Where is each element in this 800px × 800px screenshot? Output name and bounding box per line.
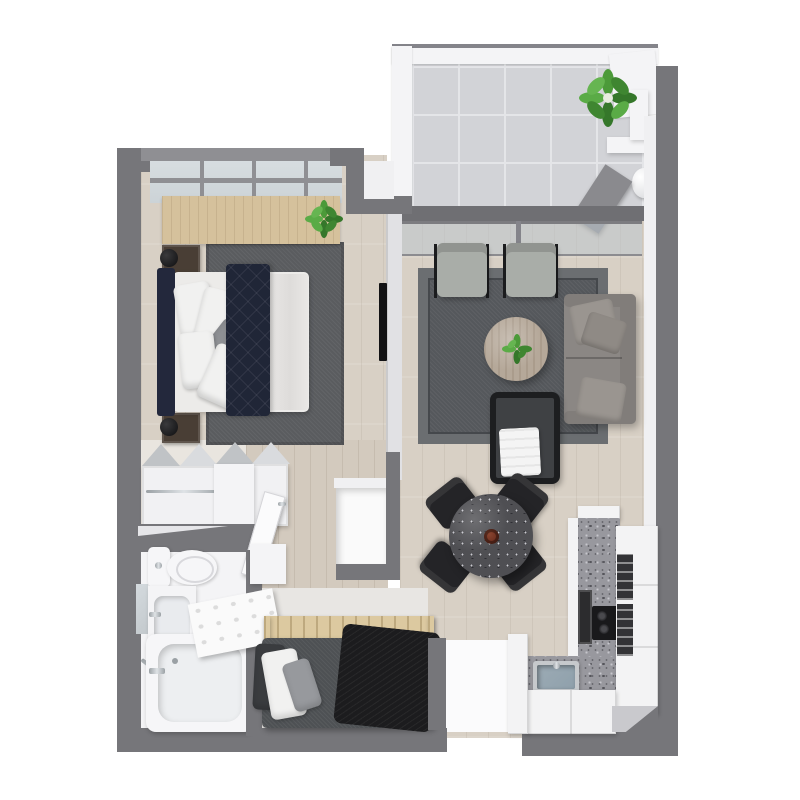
toilet-flush-button	[155, 562, 162, 569]
sliding-door-track	[396, 206, 644, 221]
appliance-glass-upper	[617, 554, 633, 600]
bed-duvet-navy	[226, 264, 270, 416]
toilet-seat-line	[176, 556, 214, 583]
accent-chair-left	[437, 243, 487, 297]
tub-faucet	[149, 668, 165, 674]
vanity-faucet	[149, 612, 161, 617]
closet-peak-4	[252, 442, 290, 464]
closet-wardrobe-box	[214, 464, 254, 524]
appliance-glass-lower	[617, 604, 633, 656]
balcony-parapet-left	[392, 46, 412, 218]
table-lamp-top-icon	[160, 249, 178, 267]
den-wall-shelf	[250, 544, 286, 584]
hall-closet-lip	[334, 478, 386, 488]
base-cabinet-seam	[570, 690, 572, 734]
balcony-parapet-edge	[392, 44, 658, 48]
hall-closet-wall-south	[336, 564, 400, 580]
wall-left	[117, 148, 141, 752]
hall-closet-interior	[336, 488, 386, 566]
den-black-throw	[333, 623, 441, 733]
sink-faucet	[553, 662, 560, 669]
floor-plan-canvas	[0, 0, 800, 800]
closet-hanging-rod	[146, 490, 222, 493]
oven-front	[578, 590, 592, 644]
closet-shelving-left	[142, 466, 218, 528]
window-header	[141, 148, 347, 161]
tub-drain	[172, 658, 178, 664]
table-lamp-bottom-icon	[160, 418, 178, 436]
bed-duvet-light	[268, 274, 308, 410]
closet-peak-3	[216, 442, 254, 464]
burner-2	[599, 624, 609, 634]
lounge-throw-blanket	[499, 427, 541, 477]
closet-peak-1	[142, 444, 180, 466]
window-bar-horizontal	[150, 178, 342, 183]
door-handle	[278, 502, 286, 506]
sofa-pillow-3	[575, 376, 627, 423]
bedroom-living-wall	[386, 214, 402, 480]
hall-closet-wall-east	[386, 452, 400, 580]
den-wall-right	[428, 638, 446, 730]
desk-plant-icon	[305, 200, 343, 238]
kitchen-west-panel	[508, 634, 528, 734]
table-vase	[484, 529, 499, 544]
accent-chair-right	[506, 243, 556, 297]
closet-peak-2	[180, 444, 218, 466]
wall-right	[656, 66, 678, 756]
coffee-table-plant-icon	[502, 334, 532, 364]
sofa-seat-seam	[566, 357, 622, 359]
balcony-plant-icon	[578, 68, 638, 128]
wall-tv	[379, 283, 387, 361]
wall-jog-face	[364, 161, 394, 199]
burner-1	[597, 611, 607, 621]
bed-headboard	[157, 268, 175, 416]
bathroom-mirror	[136, 584, 148, 634]
